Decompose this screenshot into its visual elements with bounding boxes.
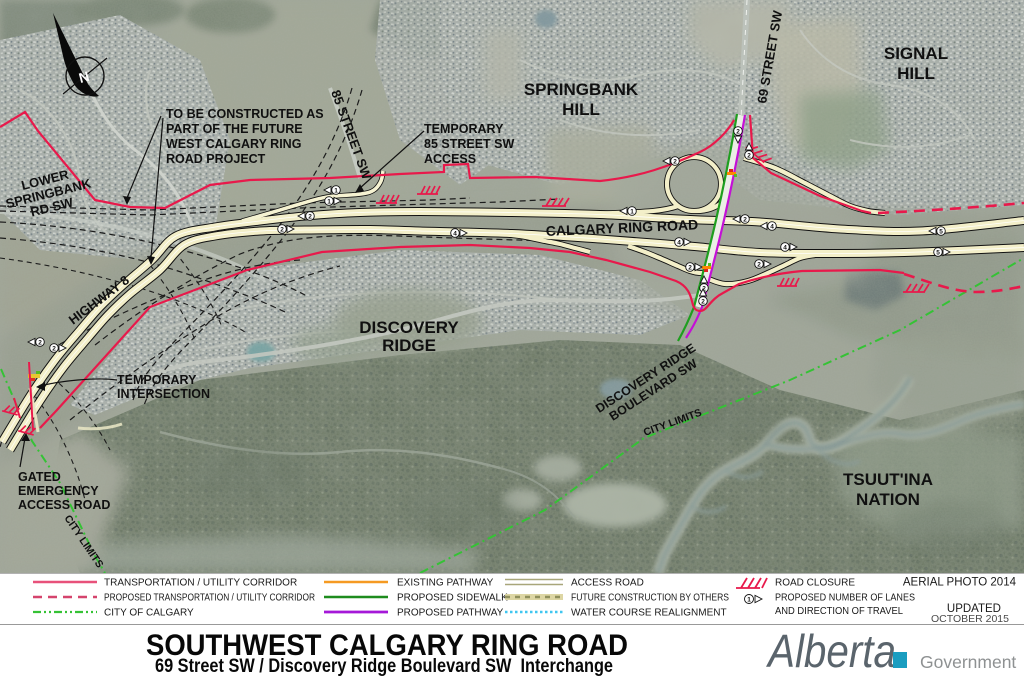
svg-text:DISCOVERY: DISCOVERY	[359, 318, 459, 337]
svg-text:INTERSECTION: INTERSECTION	[117, 387, 210, 401]
svg-text:4: 4	[677, 239, 681, 246]
svg-text:SPRINGBANK: SPRINGBANK	[524, 80, 639, 99]
svg-text:2: 2	[52, 345, 56, 352]
svg-text:TEMPORARY: TEMPORARY	[424, 122, 504, 136]
svg-text:2: 2	[743, 216, 747, 223]
svg-text:AERIAL PHOTO 2014: AERIAL PHOTO 2014	[903, 577, 1017, 589]
svg-text:OCTOBER 2015: OCTOBER 2015	[931, 613, 1009, 625]
svg-text:2: 2	[308, 213, 312, 220]
svg-text:TO BE CONSTRUCTED AS: TO BE CONSTRUCTED AS	[166, 107, 324, 121]
svg-text:ROAD CLOSURE: ROAD CLOSURE	[775, 578, 855, 589]
svg-text:1: 1	[747, 597, 751, 604]
svg-text:SIGNAL: SIGNAL	[884, 44, 948, 63]
svg-text:FUTURE CONSTRUCTION BY OTHERS: FUTURE CONSTRUCTION BY OTHERS	[571, 593, 729, 604]
svg-text:2: 2	[736, 128, 740, 135]
svg-text:PROPOSED PATHWAY: PROPOSED PATHWAY	[397, 608, 504, 619]
svg-text:2: 2	[747, 152, 751, 159]
svg-text:EXISTING PATHWAY: EXISTING PATHWAY	[397, 578, 494, 589]
svg-text:Alberta: Alberta	[765, 625, 896, 677]
svg-text:1: 1	[630, 208, 634, 215]
svg-text:CITY OF CALGARY: CITY OF CALGARY	[104, 608, 194, 619]
svg-text:2: 2	[701, 298, 705, 305]
svg-text:WEST CALGARY RING: WEST CALGARY RING	[166, 137, 301, 151]
svg-text:69 Street SW / Discovery Ridge: 69 Street SW / Discovery Ridge Boulevard…	[155, 656, 613, 677]
svg-text:PROPOSED NUMBER OF LANES: PROPOSED NUMBER OF LANES	[775, 593, 915, 604]
svg-text:TRANSPORTATION / UTILITY CORRI: TRANSPORTATION / UTILITY CORRIDOR	[104, 578, 297, 589]
svg-text:ACCESS ROAD: ACCESS ROAD	[571, 578, 644, 589]
svg-text:ACCESS: ACCESS	[424, 152, 476, 166]
svg-text:2: 2	[688, 264, 692, 271]
svg-text:PROPOSED SIDEWALK: PROPOSED SIDEWALK	[397, 593, 508, 604]
svg-text:WATER COURSE REALIGNMENT: WATER COURSE REALIGNMENT	[571, 608, 727, 619]
svg-text:GATED: GATED	[18, 470, 61, 484]
svg-text:4: 4	[453, 230, 457, 237]
svg-text:2: 2	[673, 158, 677, 165]
svg-text:PROPOSED TRANSPORTATION / UTIL: PROPOSED TRANSPORTATION / UTILITY CORRID…	[104, 593, 315, 604]
svg-text:2: 2	[38, 339, 42, 346]
svg-text:5: 5	[939, 228, 943, 235]
svg-text:ROAD PROJECT: ROAD PROJECT	[166, 152, 266, 166]
svg-text:85 STREET SW: 85 STREET SW	[424, 137, 514, 151]
svg-text:NATION: NATION	[856, 490, 920, 509]
svg-text:1: 1	[327, 198, 331, 205]
svg-text:5: 5	[936, 249, 940, 256]
svg-text:EMERGENCY: EMERGENCY	[18, 484, 99, 498]
svg-text:AND DIRECTION OF TRAVEL: AND DIRECTION OF TRAVEL	[775, 606, 903, 617]
svg-text:TSUUT'INA: TSUUT'INA	[843, 470, 933, 489]
svg-text:4: 4	[770, 223, 774, 230]
svg-text:4: 4	[783, 244, 787, 251]
svg-text:PART OF THE FUTURE: PART OF THE FUTURE	[166, 122, 303, 136]
svg-text:2: 2	[757, 261, 761, 268]
svg-text:HILL: HILL	[562, 100, 600, 119]
svg-text:Government: Government	[920, 652, 1016, 672]
svg-text:HILL: HILL	[897, 64, 935, 83]
svg-text:2: 2	[280, 226, 284, 233]
svg-text:ACCESS ROAD: ACCESS ROAD	[18, 498, 110, 512]
svg-text:TEMPORARY: TEMPORARY	[117, 373, 197, 387]
svg-text:RIDGE: RIDGE	[382, 336, 436, 355]
svg-text:1: 1	[334, 187, 338, 194]
